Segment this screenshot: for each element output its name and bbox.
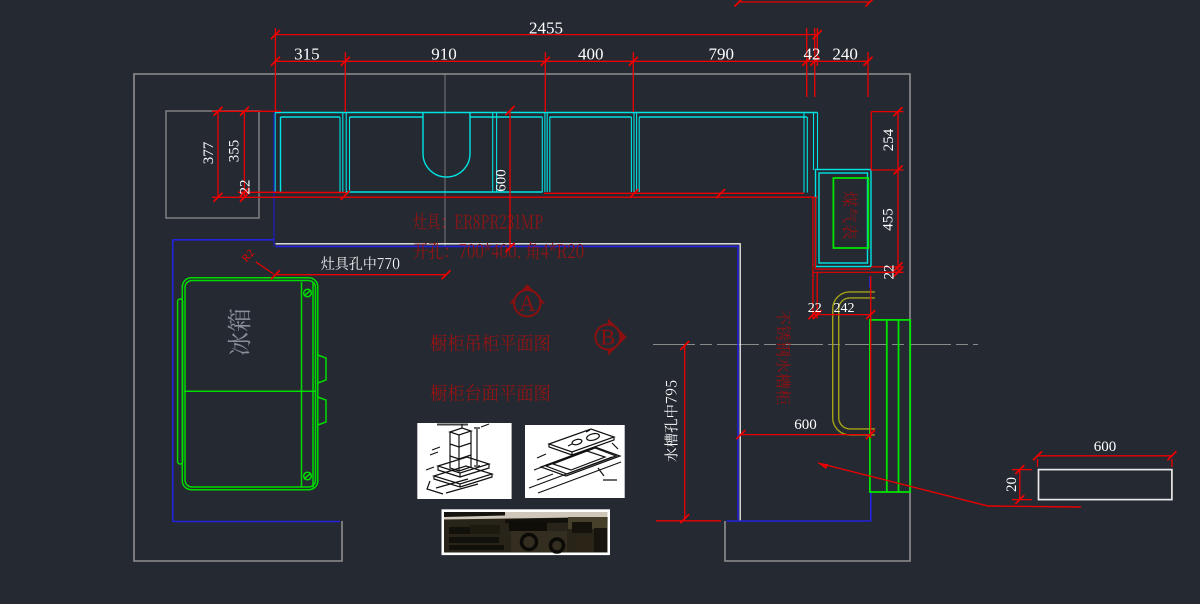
svg-text:315: 315 bbox=[294, 45, 320, 64]
svg-text:910: 910 bbox=[431, 45, 457, 64]
svg-text:242: 242 bbox=[834, 301, 855, 316]
svg-text:254: 254 bbox=[881, 128, 897, 151]
svg-text:22: 22 bbox=[808, 301, 822, 316]
svg-text:377: 377 bbox=[201, 141, 217, 164]
svg-text:240: 240 bbox=[832, 45, 858, 64]
svg-text:355: 355 bbox=[227, 140, 243, 163]
svg-text:455: 455 bbox=[881, 208, 897, 231]
svg-text:42: 42 bbox=[804, 45, 821, 64]
svg-text:400: 400 bbox=[578, 45, 604, 64]
svg-text:B: B bbox=[601, 325, 616, 350]
svg-text:790: 790 bbox=[709, 45, 735, 64]
svg-text:600: 600 bbox=[494, 169, 510, 192]
svg-text:22: 22 bbox=[238, 180, 254, 195]
svg-text:22: 22 bbox=[882, 265, 898, 280]
svg-text:600: 600 bbox=[794, 417, 817, 433]
svg-text:600: 600 bbox=[1094, 439, 1117, 455]
svg-text:20: 20 bbox=[1004, 477, 1020, 492]
svg-text:2455: 2455 bbox=[529, 19, 563, 38]
svg-text:A: A bbox=[519, 291, 536, 316]
